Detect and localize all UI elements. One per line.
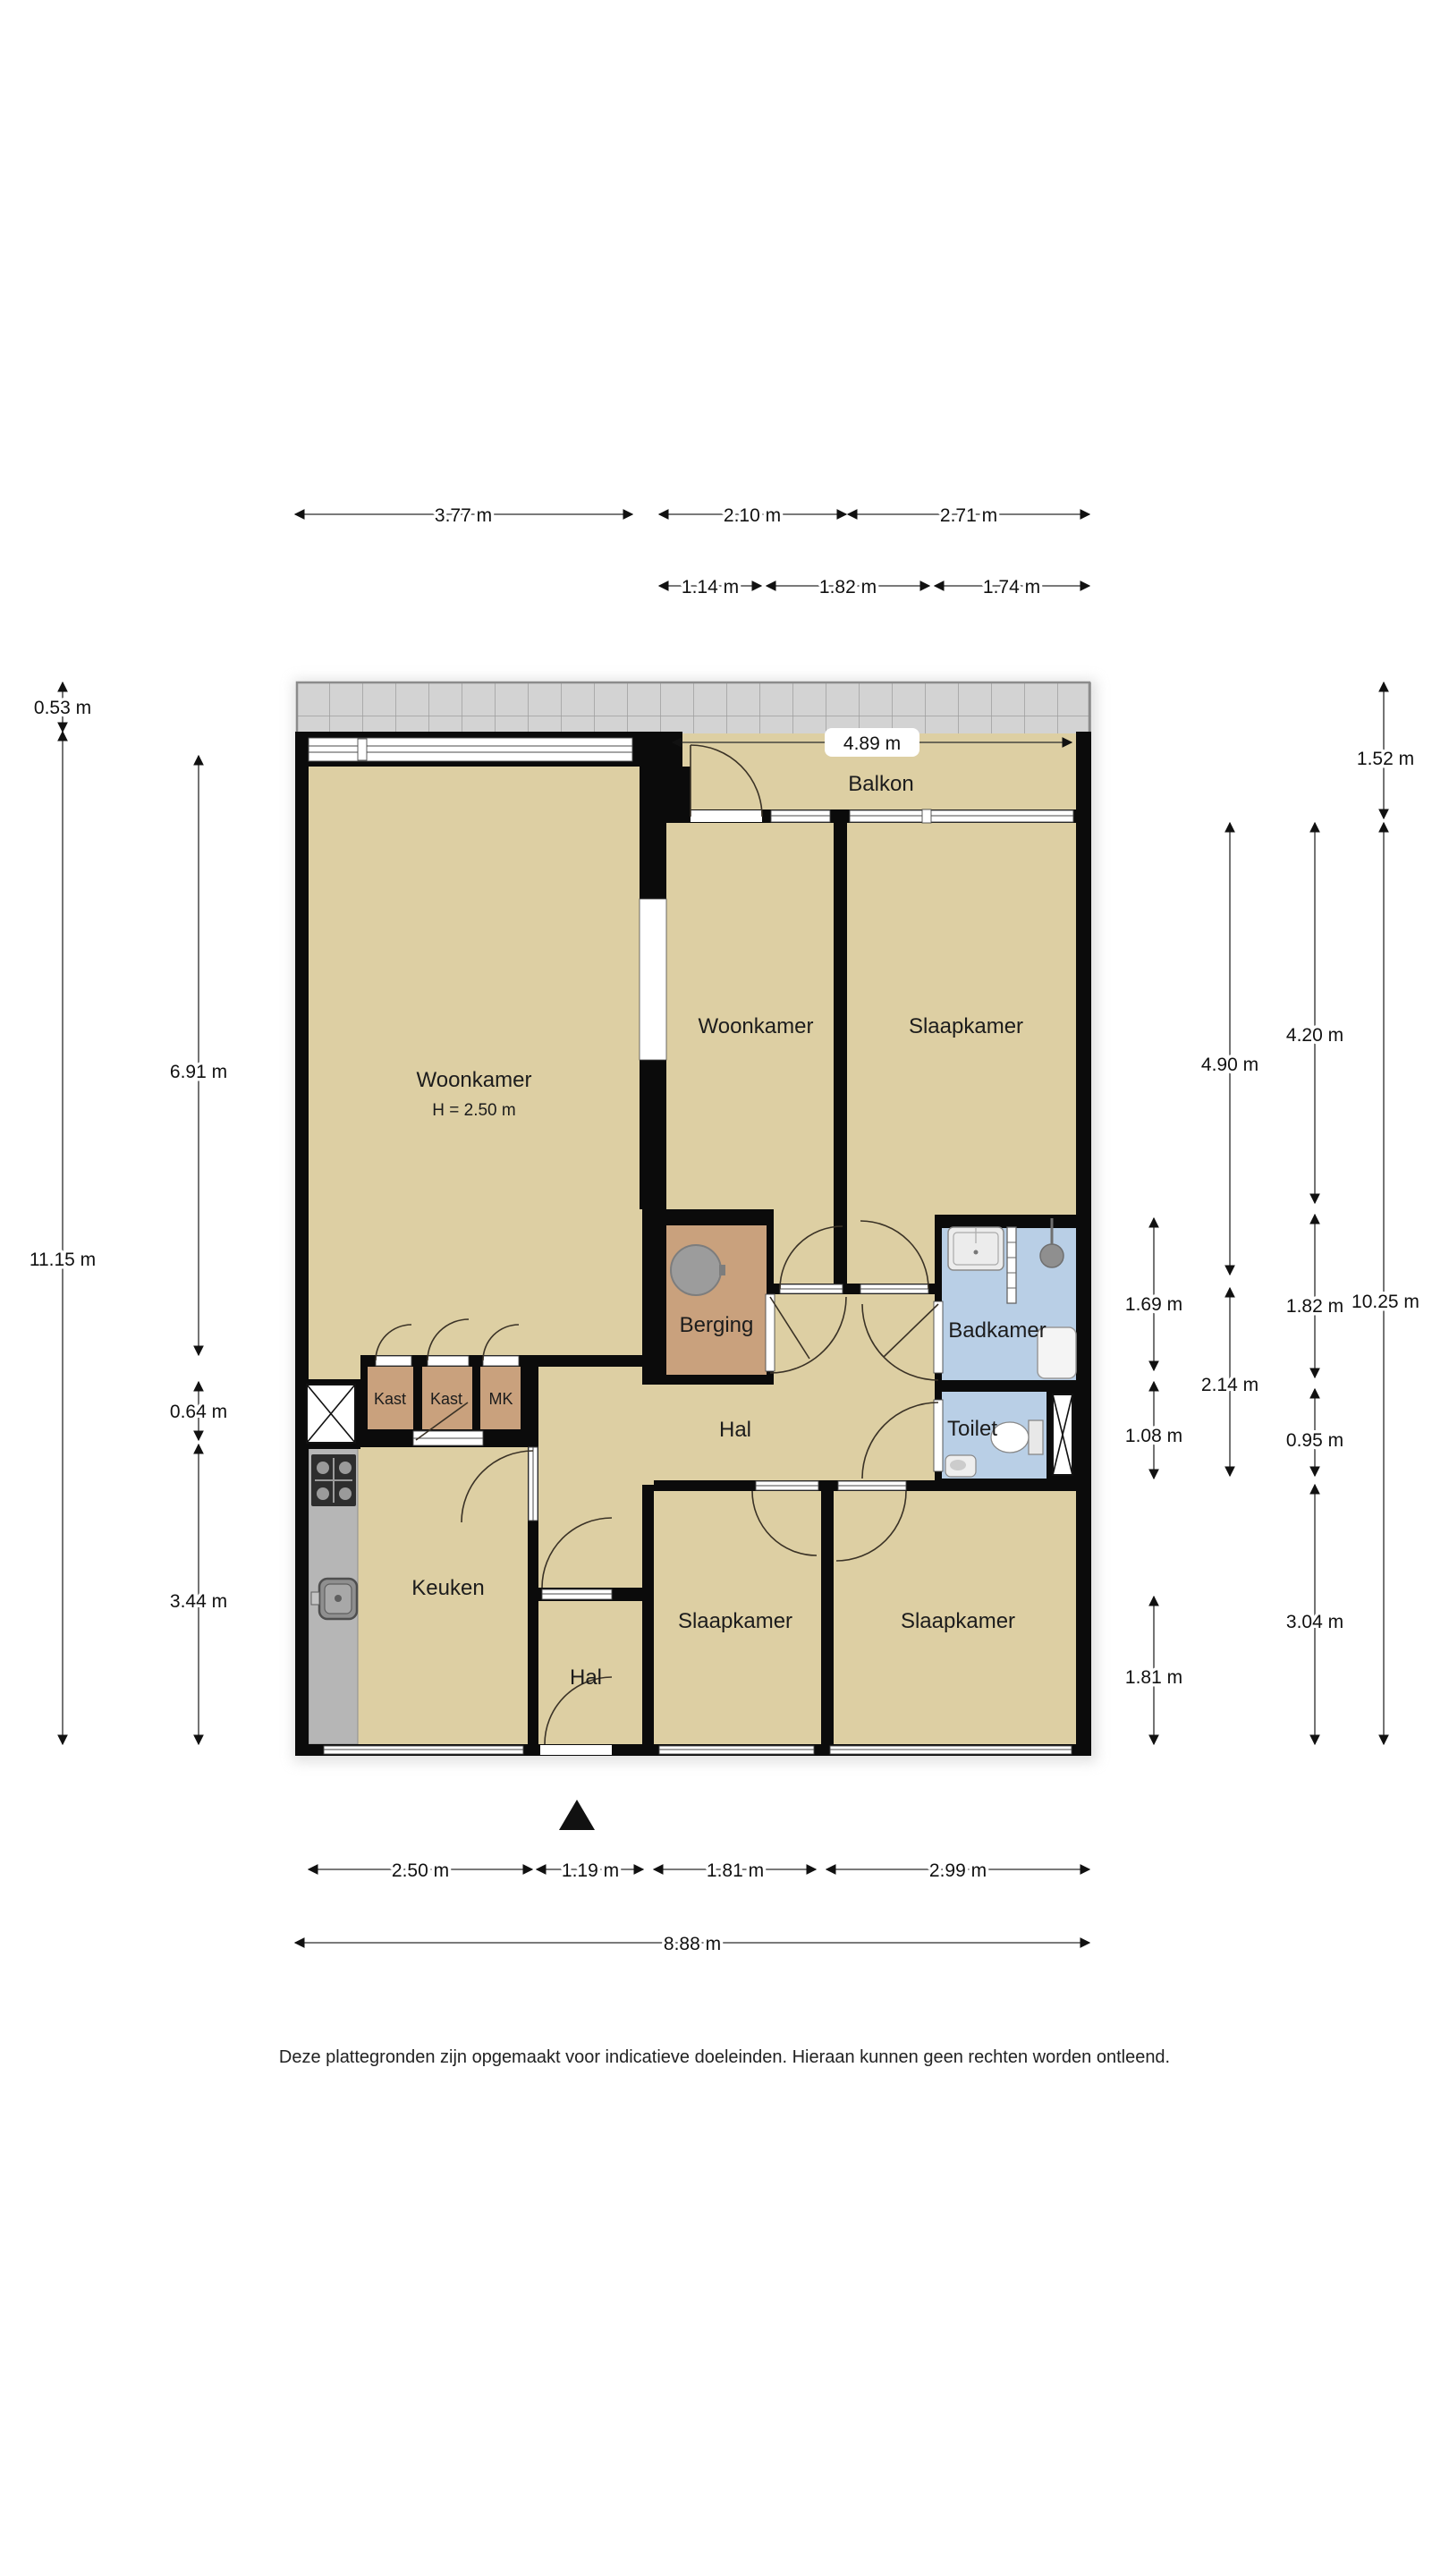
dim-right-095: 0.95 m: [1286, 1430, 1343, 1451]
dim-top-182: 1.82 m: [819, 577, 877, 597]
entry-door-gap: [540, 1745, 612, 1755]
stove-icon: [311, 1454, 356, 1506]
dim-right-169: 1.69 m: [1125, 1294, 1182, 1315]
room-label-slaapkamer-br: Slaapkamer: [901, 1609, 1015, 1633]
toilet-icon: [991, 1420, 1043, 1454]
dim-left-344: 3.44 m: [170, 1591, 227, 1612]
radiator-icon: [1007, 1227, 1016, 1303]
room-label-woonkamer-main: Woonkamer: [417, 1068, 532, 1092]
room-label-berging: Berging: [680, 1313, 754, 1337]
bathroom-sink-icon: [948, 1227, 1004, 1270]
door-gap-berging: [766, 1294, 775, 1371]
room-berging-floor: [653, 1216, 774, 1379]
dim-right-490: 4.90 m: [1201, 1055, 1258, 1075]
dim-right-420: 4.20 m: [1286, 1025, 1343, 1046]
dim-top-377: 3.77 m: [435, 505, 492, 526]
room-label-woonkamer-mid: Woonkamer: [699, 1014, 814, 1038]
dim-bottom-299: 2.99 m: [929, 1860, 987, 1881]
room-label-badkamer: Badkamer: [948, 1318, 1046, 1343]
dim-right-304: 3.04 m: [1286, 1612, 1343, 1632]
dim-top-174: 1.74 m: [983, 577, 1040, 597]
shaft-left: [307, 1385, 355, 1443]
dim-top-210: 2.10 m: [724, 505, 781, 526]
window-woonkamer-top: [309, 738, 632, 761]
hand-basin-icon: [945, 1455, 976, 1477]
balcony-door-gap: [691, 810, 762, 822]
room-label-kast1: Kast: [374, 1390, 406, 1408]
dim-left-691: 6.91 m: [170, 1062, 227, 1082]
woonkamer-passage-opening: [640, 899, 666, 1060]
dim-left-053: 0.53 m: [34, 698, 91, 718]
dim-bottom-888: 8.88 m: [664, 1934, 721, 1954]
dim-left-064: 0.64 m: [170, 1402, 227, 1422]
dim-top-271: 2.71 m: [940, 505, 997, 526]
north-arrow-icon: [559, 1800, 595, 1830]
dim-right-181: 1.81 m: [1125, 1667, 1182, 1688]
dim-right-1025: 10.25 m: [1352, 1292, 1419, 1312]
room-label-balkon: Balkon: [848, 772, 913, 796]
dim-balkon-width: 4.89 m: [843, 733, 901, 754]
dim-bottom-250: 2.50 m: [392, 1860, 449, 1881]
dim-bottom-181: 1.81 m: [707, 1860, 764, 1881]
door-gap-toilet: [934, 1400, 943, 1471]
boiler-icon: [671, 1245, 721, 1295]
room-label-keuken: Keuken: [411, 1576, 484, 1600]
disclaimer-text: Deze plattegronden zijn opgemaakt voor i…: [279, 2047, 1170, 2067]
room-label-mk: MK: [489, 1390, 513, 1408]
room-label-kast2: Kast: [430, 1390, 462, 1408]
dim-right-214: 2.14 m: [1201, 1375, 1258, 1395]
room-label-hal-main: Hal: [719, 1418, 751, 1442]
floor-plan-image: 3.77 m 2.10 m 2.71 m 1.14 m 1.82 m 1.74 …: [0, 0, 1449, 2576]
room-label-hal-entry: Hal: [570, 1665, 602, 1690]
room-label-woonkamer-height: H = 2.50 m: [432, 1101, 515, 1120]
shaft-right: [1053, 1394, 1072, 1475]
dim-right-152: 1.52 m: [1357, 749, 1414, 769]
room-label-toilet: Toilet: [947, 1417, 997, 1441]
dim-right-108: 1.08 m: [1125, 1426, 1182, 1446]
room-label-slaapkamer-top: Slaapkamer: [909, 1014, 1023, 1038]
dim-left-1115: 11.15 m: [30, 1250, 96, 1270]
dim-top-114: 1.14 m: [682, 577, 739, 597]
door-gap-badkamer: [934, 1301, 943, 1373]
dim-right-182: 1.82 m: [1286, 1296, 1343, 1317]
room-label-slaapkamer-bl: Slaapkamer: [678, 1609, 792, 1633]
dim-bottom-119: 1.19 m: [562, 1860, 619, 1881]
